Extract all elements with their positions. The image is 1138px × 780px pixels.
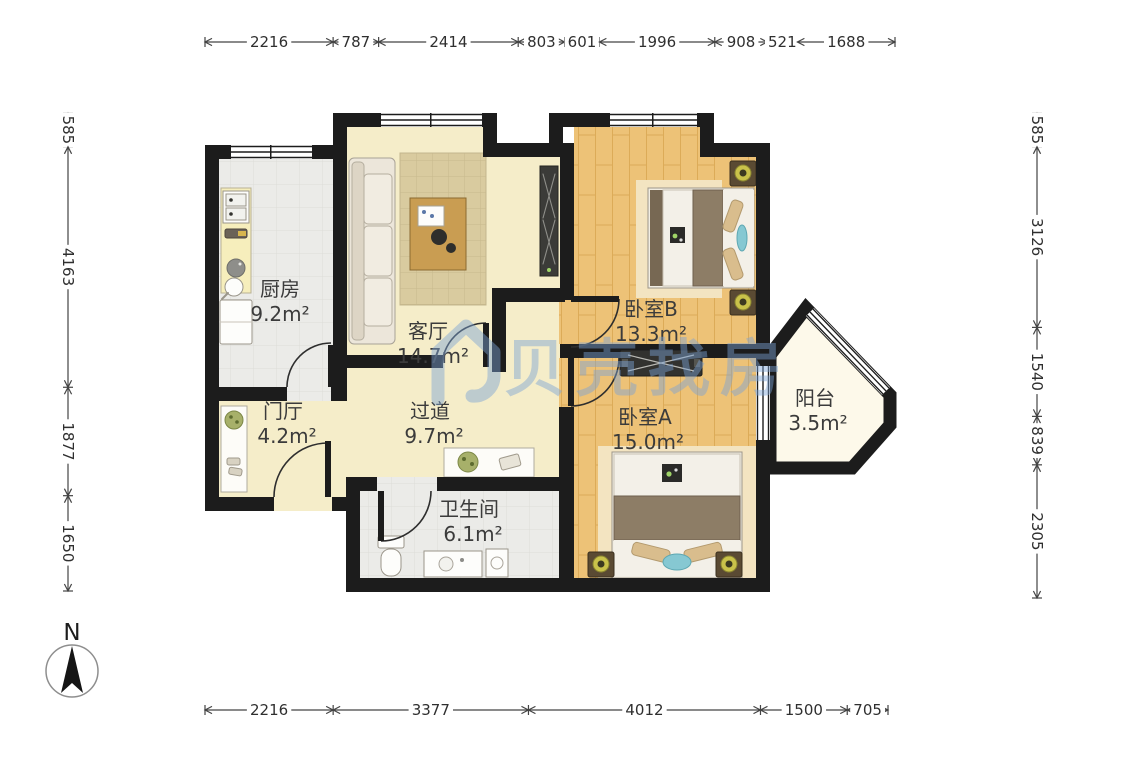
- dimension-label: 3126: [1028, 218, 1046, 256]
- dim-label-group: 803: [524, 33, 559, 51]
- room-area-hallway: 9.7m²: [404, 424, 463, 448]
- dim-label-group: 2216: [247, 701, 291, 719]
- dimension-label: 1688: [827, 33, 865, 51]
- room-label-kitchen: 厨房: [260, 277, 300, 301]
- sofa-cushion: [364, 174, 392, 224]
- room-area-bedroomA: 15.0m²: [612, 430, 684, 454]
- dimension-label: 839: [1028, 426, 1046, 455]
- bath-threshold: [377, 477, 437, 491]
- dim-label-group: 1688: [824, 33, 868, 51]
- dimension-label: 1500: [785, 701, 823, 719]
- kitchen-window: [228, 145, 315, 159]
- dimension-label: 585: [59, 116, 77, 145]
- dim-label-group: 787: [338, 33, 373, 51]
- vanity-sink: [439, 557, 453, 571]
- kettle: [431, 229, 447, 245]
- dimension-label: 585: [1028, 116, 1046, 145]
- dim-label-group: 705: [850, 701, 885, 719]
- room-area-kitchen: 9.2m²: [250, 302, 309, 326]
- watermark-text: 贝壳找房: [504, 332, 792, 405]
- stove-burner: [226, 208, 246, 220]
- dimension-label: 1540: [1028, 353, 1046, 391]
- dim-label-group: 601: [565, 33, 600, 51]
- wall-right-outer-upper: [756, 143, 770, 363]
- wall-bath-left: [346, 477, 360, 592]
- living-window: [378, 113, 485, 127]
- bedA-throw: [663, 554, 691, 570]
- plant-leaf: [470, 462, 474, 466]
- room-label-hallway: 过道: [410, 399, 450, 423]
- bedA-remote-dot: [666, 471, 671, 476]
- room-label-bedroomB: 卧室B: [624, 297, 678, 321]
- room-label-bedroomA: 卧室A: [618, 405, 672, 429]
- dim-label-group: 1500: [782, 701, 826, 719]
- room-label-balcony: 阳台: [795, 386, 835, 410]
- dimension-label: 787: [342, 33, 371, 51]
- wall-foyer-bottom-right: [332, 497, 360, 511]
- dimension-label: 803: [527, 33, 556, 51]
- dim-label-group: 1650: [59, 521, 77, 565]
- room-area-bathroom: 6.1m²: [443, 522, 502, 546]
- tv-panel: [540, 166, 558, 276]
- dim-label-group: 1540: [1028, 350, 1046, 394]
- plant: [458, 452, 478, 472]
- bedB-band-dark: [650, 190, 663, 286]
- bedB-remote-dot: [679, 238, 682, 241]
- kitchen-sink: [227, 259, 245, 277]
- bedA-remote-dot: [674, 468, 677, 471]
- dimension-label: 2216: [250, 701, 288, 719]
- dimension-label: 1650: [59, 524, 77, 562]
- dimension-label: 4012: [625, 701, 663, 719]
- dimension-label: 3377: [412, 701, 450, 719]
- tray-dot: [430, 214, 434, 218]
- floor-plan-canvas: 厨房 9.2m² 客厅 14.7m² 卧室B 13.3m² 卧室A 15.0m²…: [0, 0, 1138, 780]
- dim-label-group: 1996: [635, 33, 679, 51]
- burner-dot: [229, 198, 233, 202]
- dim-label-group: 4012: [622, 701, 666, 719]
- wall-left-outer: [205, 145, 219, 511]
- lamp-center: [740, 299, 747, 306]
- toilet-bowl: [381, 549, 401, 576]
- dimension-label: 1996: [638, 33, 676, 51]
- dimension-label: 2216: [250, 33, 288, 51]
- dimension-label: 705: [853, 701, 882, 719]
- shoe: [227, 458, 240, 465]
- cup: [446, 243, 456, 253]
- kitchen-item: [238, 231, 246, 236]
- sink-dot: [239, 263, 242, 266]
- dimension-chain-top: 2216787241480360119969085211688: [205, 33, 895, 51]
- sofa-back: [352, 162, 364, 340]
- dim-label-group: 2305: [1028, 509, 1046, 553]
- dim-label-group: 2216: [247, 33, 291, 51]
- wall-bath-top-right: [437, 477, 574, 491]
- floor-plan-svg: 厨房 9.2m² 客厅 14.7m² 卧室B 13.3m² 卧室A 15.0m²…: [0, 0, 1138, 780]
- lamp-center: [726, 561, 733, 568]
- stove-burner: [226, 194, 246, 206]
- entry-threshold: [274, 497, 332, 511]
- bedB-remote: [670, 227, 685, 243]
- tv-led: [547, 268, 551, 272]
- dim-label-group: 3377: [409, 701, 453, 719]
- wall-bottom: [346, 578, 770, 592]
- compass: N: [46, 620, 98, 697]
- wall-bedB-left: [560, 143, 574, 300]
- faucet-dot: [460, 558, 464, 562]
- bedA-remote: [662, 464, 682, 482]
- dimension-label: 601: [568, 33, 597, 51]
- room-area-balcony: 3.5m²: [788, 411, 847, 435]
- compass-north-label: N: [63, 620, 80, 646]
- dim-label-group: 3126: [1028, 215, 1046, 259]
- dimension-label: 4163: [59, 248, 77, 286]
- room-label-bathroom: 卫生间: [439, 497, 499, 521]
- dimension-chain-left: 585416318771650: [59, 112, 77, 591]
- room-area-foyer: 4.2m²: [257, 424, 316, 448]
- plant-leaf: [229, 415, 233, 419]
- dimension-label: 2414: [429, 33, 467, 51]
- dimension-label: 908: [727, 33, 756, 51]
- room-label-living: 客厅: [408, 319, 448, 343]
- wall-bedA-left: [559, 407, 574, 578]
- bedB-remote-dot: [673, 234, 678, 239]
- bedB-throw: [737, 225, 747, 251]
- plant-leaf: [462, 457, 466, 461]
- dim-label-group: 839: [1028, 423, 1046, 458]
- burner-dot: [229, 212, 233, 216]
- dim-label-group: 585: [1028, 112, 1046, 147]
- dim-label-group: 908: [724, 33, 759, 51]
- sofa-cushion: [364, 278, 392, 326]
- dimension-label: 521: [768, 33, 797, 51]
- room-label-foyer: 门厅: [263, 399, 303, 423]
- wall-kitchen-bottom-right: [331, 387, 347, 401]
- dim-label-group: 585: [59, 112, 77, 147]
- dimension-chain-right: 585312615408392305: [1028, 112, 1046, 598]
- plant: [225, 411, 243, 429]
- dimension-label: 1877: [59, 422, 77, 460]
- wall-bath-top-left: [346, 477, 377, 491]
- dimension-chain-bottom: 2216337740121500705: [205, 701, 888, 719]
- sofa-cushion: [364, 226, 392, 276]
- plant-leaf: [235, 420, 239, 424]
- washer: [486, 549, 508, 577]
- lamp-center: [598, 561, 605, 568]
- wall-foyer-bottom-left: [205, 497, 274, 511]
- dimension-label: 2305: [1028, 512, 1046, 550]
- bedA-blanket: [614, 496, 740, 540]
- dim-label-group: 2414: [426, 33, 470, 51]
- bedB-window: [607, 113, 700, 127]
- bedB-blanket: [693, 190, 723, 286]
- dim-label-group: 521: [765, 33, 800, 51]
- dim-label-group: 1877: [59, 419, 77, 463]
- lamp-center: [740, 170, 747, 177]
- wall-right-outer-lower: [756, 443, 770, 592]
- dim-label-group: 4163: [59, 245, 77, 289]
- tray-dot: [422, 210, 426, 214]
